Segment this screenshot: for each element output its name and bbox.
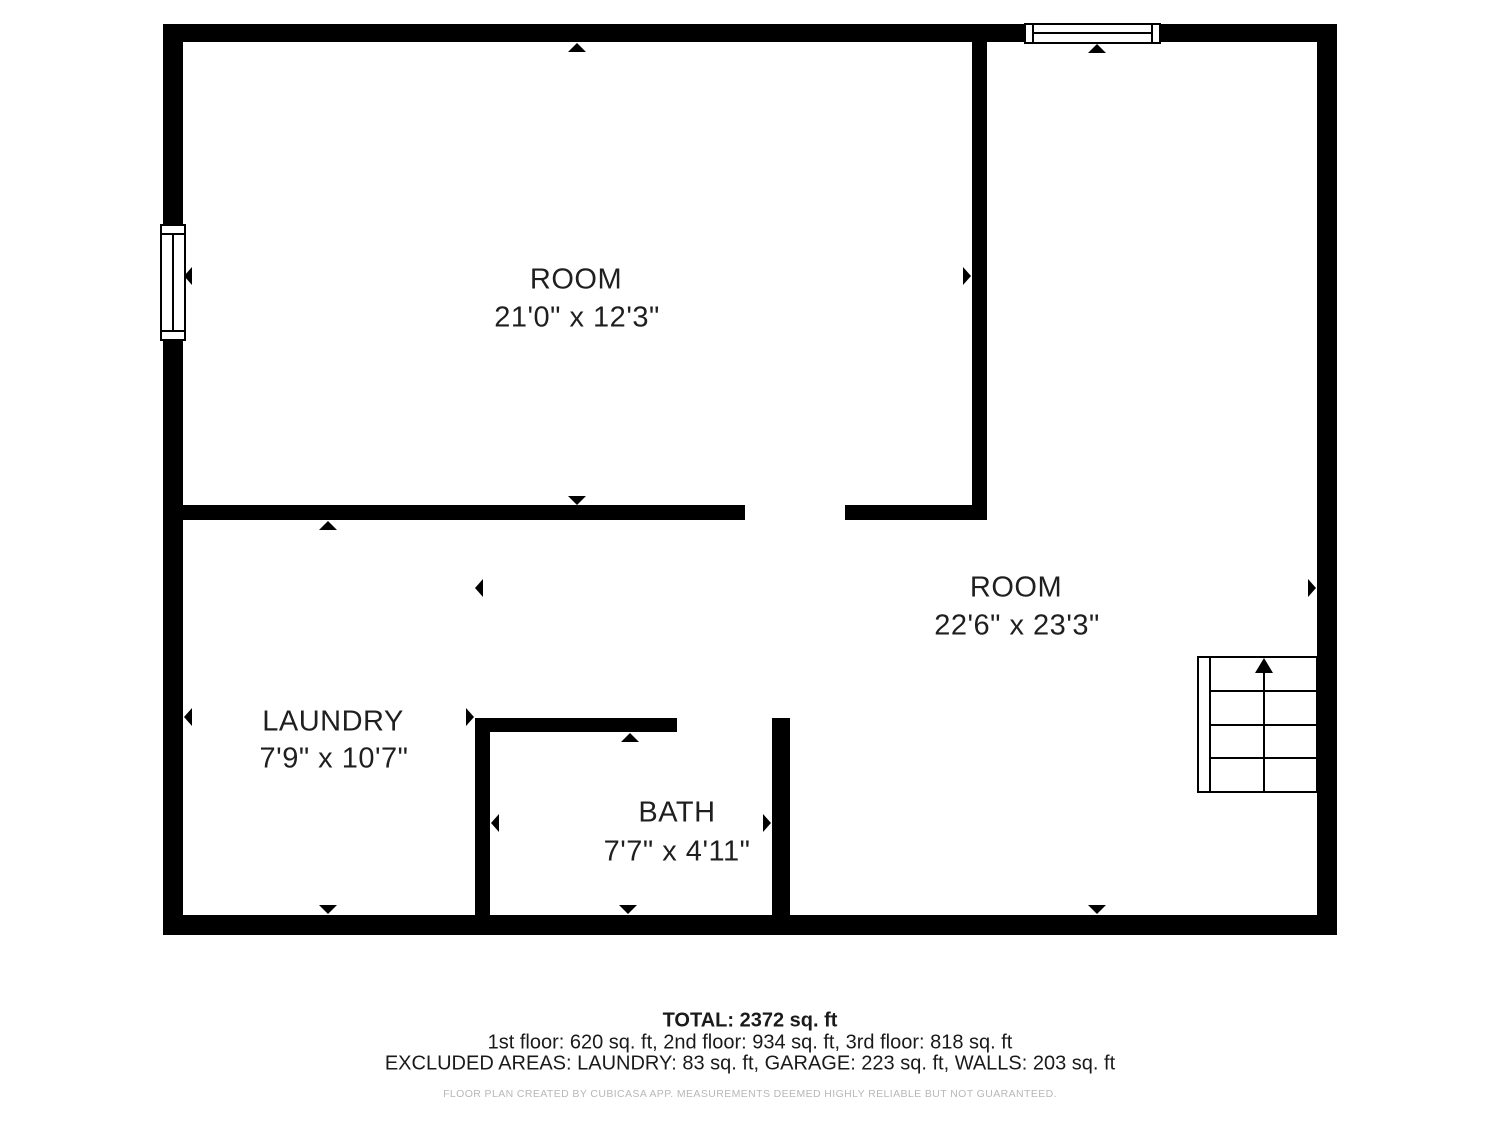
left-wall-window-icon: [160, 224, 186, 341]
dim-arrow-right-icon: [763, 814, 771, 832]
stairs-up-arrow-icon: [1255, 658, 1273, 673]
bath-wall-top: [475, 718, 677, 732]
dim-arrow-down-icon: [319, 905, 337, 914]
dim-arrow-down-icon: [568, 496, 586, 505]
dim-arrow-up-icon: [319, 521, 337, 530]
window-cap: [1151, 25, 1153, 42]
window-pane-line: [172, 235, 174, 330]
room1-dimensions: 21'0" x 12'3": [494, 302, 660, 335]
interior-wall-room1-bottom-left: [183, 505, 745, 520]
dim-arrow-right-icon: [963, 267, 971, 285]
room2-name: ROOM: [970, 572, 1062, 605]
outer-wall-right: [1317, 24, 1337, 935]
dim-arrow-left-icon: [475, 579, 483, 597]
dim-arrow-down-icon: [619, 905, 637, 914]
dim-arrow-down-icon: [1088, 905, 1106, 914]
top-wall-window-icon: [1024, 23, 1161, 44]
outer-wall-left: [163, 24, 183, 935]
floor-breakdown-text: 1st floor: 620 sq. ft, 2nd floor: 934 sq…: [488, 1032, 1013, 1055]
dim-arrow-right-icon: [1308, 579, 1316, 597]
room1-name: ROOM: [530, 264, 622, 297]
dim-arrow-up-icon: [568, 43, 586, 52]
disclaimer-text: FLOOR PLAN CREATED BY CUBICASA APP. MEAS…: [443, 1088, 1057, 1100]
dim-arrow-left-icon: [184, 267, 192, 285]
outer-wall-bottom: [163, 915, 1337, 935]
interior-wall-room1-bottom-right: [845, 505, 987, 520]
bath-dimensions: 7'7" x 4'11": [604, 836, 751, 869]
laundry-dimensions: 7'9" x 10'7": [260, 743, 409, 776]
floor-plan: ROOM 21'0" x 12'3" ROOM 22'6" x 23'3" LA…: [0, 0, 1500, 1125]
dim-arrow-left-icon: [491, 814, 499, 832]
laundry-name: LAUNDRY: [262, 706, 404, 739]
window-pane-line: [1034, 32, 1151, 34]
total-area-text: TOTAL: 2372 sq. ft: [663, 1010, 838, 1033]
excluded-areas-text: EXCLUDED AREAS: LAUNDRY: 83 sq. ft, GARA…: [385, 1053, 1115, 1076]
bath-wall-left: [475, 718, 490, 915]
dim-arrow-up-icon: [621, 733, 639, 742]
interior-wall-room1-right: [972, 42, 987, 520]
stairs-direction-arrow-shaft: [1263, 671, 1265, 791]
dim-arrow-left-icon: [184, 708, 192, 726]
bath-name: BATH: [638, 797, 715, 830]
staircase: [1197, 656, 1318, 793]
bath-wall-right: [772, 718, 790, 915]
dim-arrow-right-icon: [466, 708, 474, 726]
room2-dimensions: 22'6" x 23'3": [934, 610, 1100, 643]
dim-arrow-up-icon: [1088, 44, 1106, 53]
window-cap: [162, 330, 184, 332]
